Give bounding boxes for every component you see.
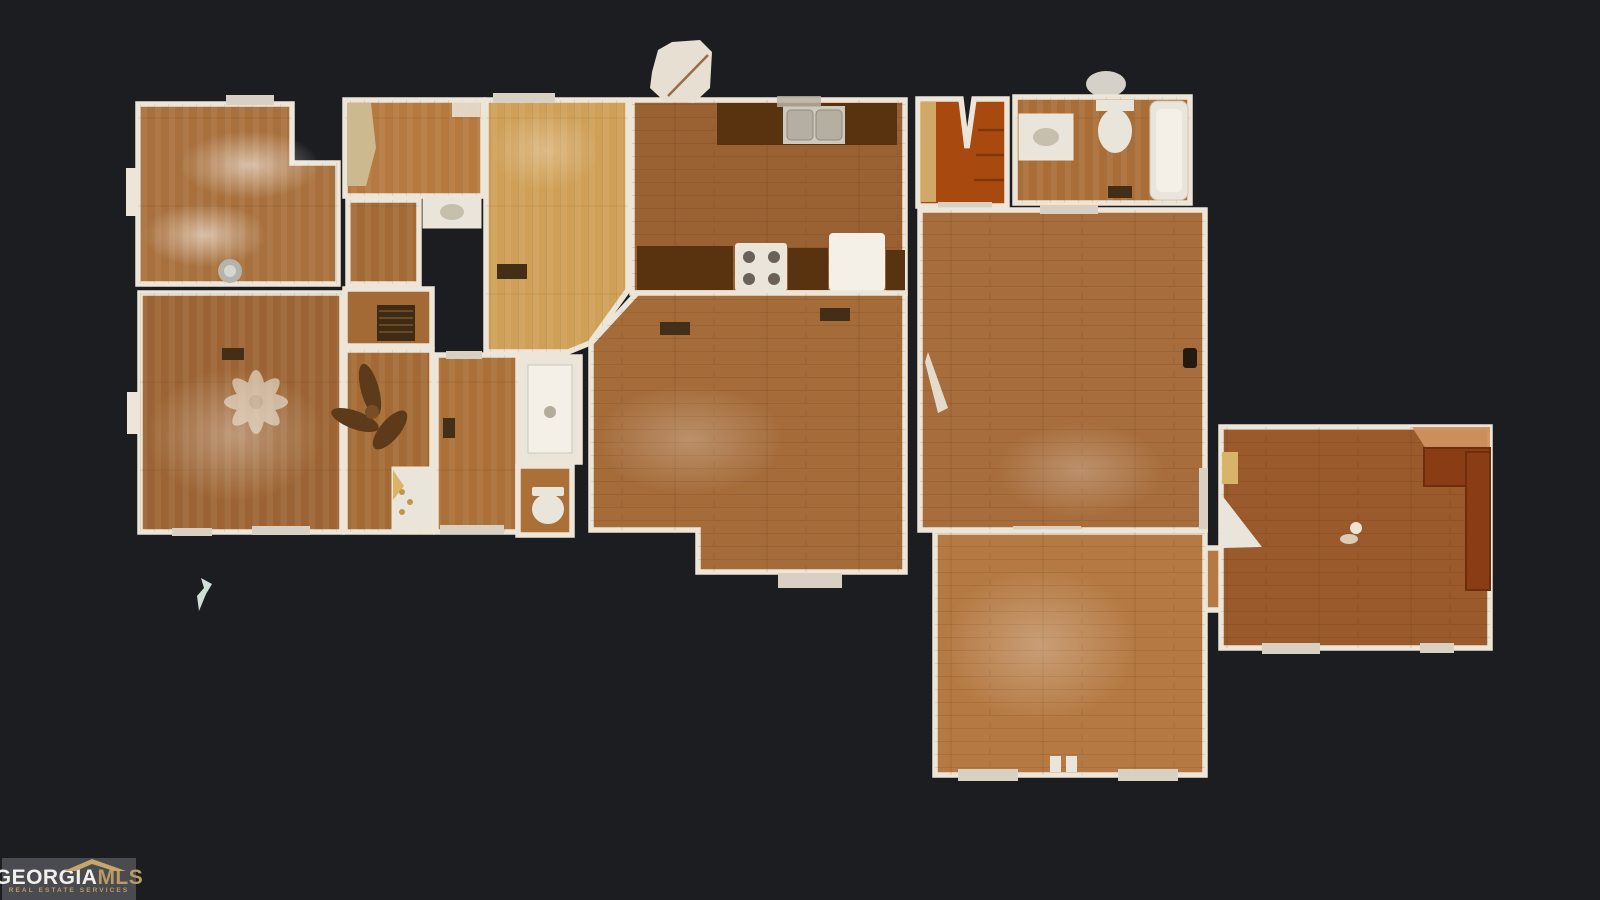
bar-counter-vertical bbox=[1466, 452, 1490, 590]
living-room-floor bbox=[591, 293, 905, 572]
door-threshold bbox=[1040, 205, 1098, 214]
roof-icon bbox=[64, 859, 126, 871]
toilet-scan-artifact bbox=[1086, 71, 1126, 97]
lower-counter-left bbox=[637, 246, 733, 290]
floor-vent bbox=[1108, 186, 1132, 198]
georgia-mls-logo: GEORGIAMLS REAL ESTATE SERVICES bbox=[2, 858, 136, 900]
logo-tagline: REAL ESTATE SERVICES bbox=[9, 887, 130, 894]
room-hallway-fan bbox=[328, 350, 433, 532]
door-threshold bbox=[252, 526, 310, 535]
sink-basin-right bbox=[816, 110, 842, 140]
stove bbox=[735, 243, 787, 291]
floor-vent bbox=[222, 348, 244, 360]
door-threshold bbox=[1199, 468, 1208, 532]
window-sill bbox=[493, 93, 555, 103]
wall-item-dark bbox=[1183, 348, 1197, 368]
window-sill bbox=[777, 96, 821, 107]
floor-vent bbox=[497, 264, 527, 279]
gold-faucet bbox=[399, 509, 405, 515]
small-object bbox=[1350, 522, 1362, 534]
bathtub-basin bbox=[1156, 109, 1182, 192]
floor-plan-canvas: GEORGIAMLS REAL ESTATE SERVICES bbox=[0, 0, 1600, 900]
door-threshold bbox=[1262, 643, 1320, 654]
room-bonus bbox=[935, 532, 1236, 781]
room-family bbox=[920, 205, 1208, 535]
shower-drain bbox=[544, 406, 556, 418]
window-sill bbox=[1420, 643, 1454, 653]
scan-artifact-top bbox=[650, 40, 712, 103]
floor-vent bbox=[820, 308, 850, 321]
sink-basin-left bbox=[787, 110, 813, 140]
room-kitchen bbox=[632, 96, 905, 293]
toilet-bowl bbox=[1098, 109, 1132, 153]
dining-floor bbox=[486, 100, 628, 352]
room-hall-grate bbox=[345, 289, 432, 346]
middle-bedroom-floor bbox=[436, 355, 518, 532]
burner bbox=[743, 251, 755, 263]
lower-counter-right bbox=[886, 250, 905, 291]
burner bbox=[768, 273, 780, 285]
ceiling-fan-light bbox=[224, 370, 288, 434]
door-threshold bbox=[1118, 769, 1178, 781]
door-threshold bbox=[958, 769, 1018, 781]
stair-trim bbox=[920, 102, 936, 202]
logo-brand-text: GEORGIAMLS bbox=[0, 868, 143, 888]
room-dining-parquet bbox=[486, 93, 628, 352]
room-shower bbox=[522, 357, 580, 462]
door-threshold bbox=[172, 528, 212, 536]
sink-basin bbox=[440, 204, 464, 220]
door-jamb bbox=[1066, 756, 1077, 772]
fan-hub bbox=[365, 405, 379, 419]
gold-faucet bbox=[399, 489, 405, 495]
door-threshold bbox=[446, 351, 482, 359]
door-threshold bbox=[440, 525, 504, 534]
room-toilet bbox=[518, 466, 572, 535]
door-frame-box bbox=[1222, 452, 1238, 484]
artifact-blob bbox=[650, 40, 712, 103]
floor-vent bbox=[660, 322, 690, 335]
floor-vent bbox=[443, 418, 455, 438]
bonus-room-floor bbox=[935, 532, 1205, 775]
roof-shape bbox=[64, 859, 126, 871]
refrigerator bbox=[829, 233, 885, 291]
room-closet-laundry bbox=[345, 100, 483, 196]
burner bbox=[743, 273, 755, 285]
family-room-floor bbox=[920, 210, 1205, 530]
sink-basin bbox=[1033, 128, 1059, 146]
room-stairwell bbox=[918, 99, 1007, 214]
shelf-white bbox=[452, 101, 480, 117]
fan-hub bbox=[249, 395, 263, 409]
door-threshold bbox=[226, 95, 274, 105]
ceiling-fan-light bbox=[224, 265, 236, 277]
vanity-counter bbox=[393, 468, 433, 530]
toilet-bowl bbox=[532, 494, 564, 524]
floor-plan-svg bbox=[0, 0, 1600, 900]
door-jamb bbox=[1050, 756, 1061, 772]
small-object-shadow bbox=[1340, 534, 1358, 544]
entry-step bbox=[778, 573, 842, 588]
burner bbox=[768, 251, 780, 263]
gold-faucet bbox=[407, 499, 413, 505]
lower-counter-mid bbox=[788, 248, 828, 290]
inner-hall-floor bbox=[348, 200, 419, 284]
room-middle-bedroom bbox=[436, 351, 518, 534]
stove-top bbox=[735, 243, 787, 291]
room-den bbox=[1221, 427, 1490, 654]
room-master-bedroom bbox=[127, 293, 342, 536]
